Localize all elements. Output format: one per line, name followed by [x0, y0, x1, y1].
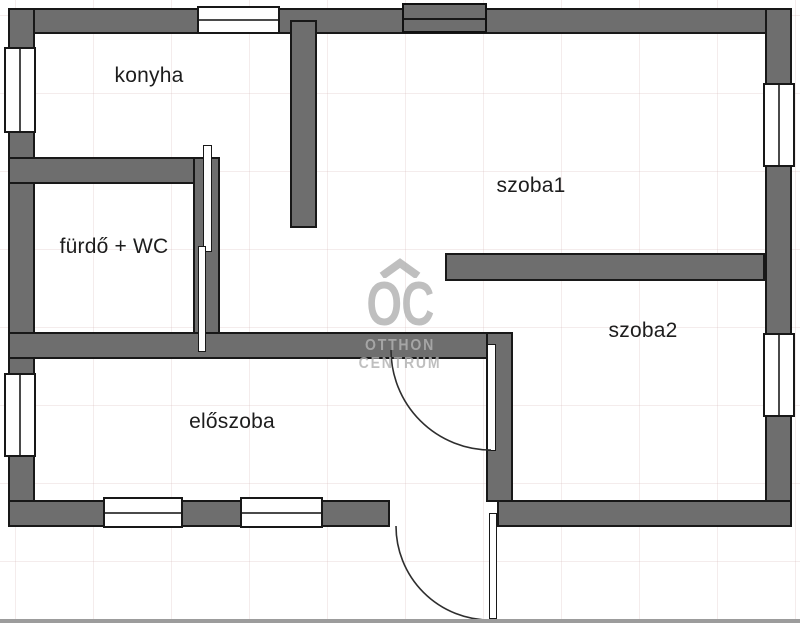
- chimney-divider-line: [404, 18, 485, 20]
- wall-room1-room2-divider: [445, 253, 765, 281]
- wall-hall-top: [8, 332, 513, 359]
- wall-hall-bottom: [8, 500, 390, 527]
- door-arc-entrance: [396, 526, 490, 620]
- wall-top: [8, 8, 792, 34]
- window-right-lower-icon: [763, 333, 795, 417]
- room-label-furdo-wc: fürdő + WC: [60, 235, 169, 259]
- room-label-szoba2: szoba2: [609, 319, 678, 343]
- chimney-block: [402, 3, 487, 33]
- door-leaf-kitchen: [203, 145, 212, 252]
- wall-room2-bottom: [497, 500, 792, 527]
- room-label-konyha: konyha: [115, 64, 184, 88]
- watermark-monogram: OC: [365, 280, 435, 331]
- wall-kitchen-bottom: [8, 157, 220, 184]
- roof-caret-icon: [377, 258, 423, 278]
- door-arc-room2: [391, 350, 491, 450]
- door-leaf-entrance: [489, 513, 497, 619]
- door-swing-arcs: [0, 0, 800, 623]
- door-leaf-room2: [487, 344, 496, 451]
- room-label-eloszoba: előszoba: [189, 410, 275, 434]
- window-right-upper-icon: [763, 83, 795, 167]
- door-leaf-bathroom: [198, 246, 206, 352]
- window-bottom-mid-icon: [240, 497, 323, 528]
- floorplan-canvas: konyha szoba1 szoba2 fürdő + WC előszoba…: [0, 0, 800, 623]
- window-left-lower-icon: [4, 373, 36, 457]
- window-top-icon: [197, 6, 280, 34]
- window-left-upper-icon: [4, 47, 36, 133]
- window-bottom-left-icon: [103, 497, 183, 528]
- wall-center-partition: [290, 20, 317, 228]
- bottom-divider-bar: [0, 619, 800, 623]
- room-label-szoba1: szoba1: [497, 174, 566, 198]
